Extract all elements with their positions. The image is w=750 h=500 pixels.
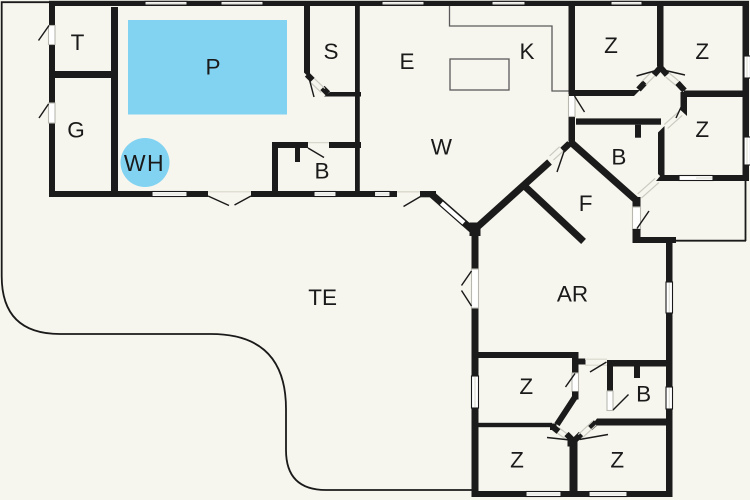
svg-text:TE: TE	[308, 285, 337, 310]
svg-text:Z: Z	[510, 447, 524, 472]
svg-text:Z: Z	[604, 33, 618, 58]
svg-text:E: E	[399, 49, 414, 74]
svg-text:B: B	[314, 159, 329, 184]
svg-text:K: K	[519, 39, 534, 64]
svg-text:F: F	[579, 191, 593, 216]
svg-text:AR: AR	[557, 282, 588, 307]
svg-text:Z: Z	[695, 39, 709, 64]
svg-text:Z: Z	[610, 447, 624, 472]
svg-text:G: G	[67, 117, 85, 142]
svg-text:B: B	[636, 381, 651, 406]
svg-text:W: W	[431, 135, 453, 160]
svg-text:T: T	[71, 30, 85, 55]
svg-text:S: S	[323, 39, 338, 64]
svg-text:Z: Z	[519, 374, 533, 399]
svg-text:P: P	[205, 55, 220, 80]
svg-text:WH: WH	[124, 150, 165, 176]
svg-text:Z: Z	[695, 117, 709, 142]
svg-text:B: B	[611, 144, 626, 169]
